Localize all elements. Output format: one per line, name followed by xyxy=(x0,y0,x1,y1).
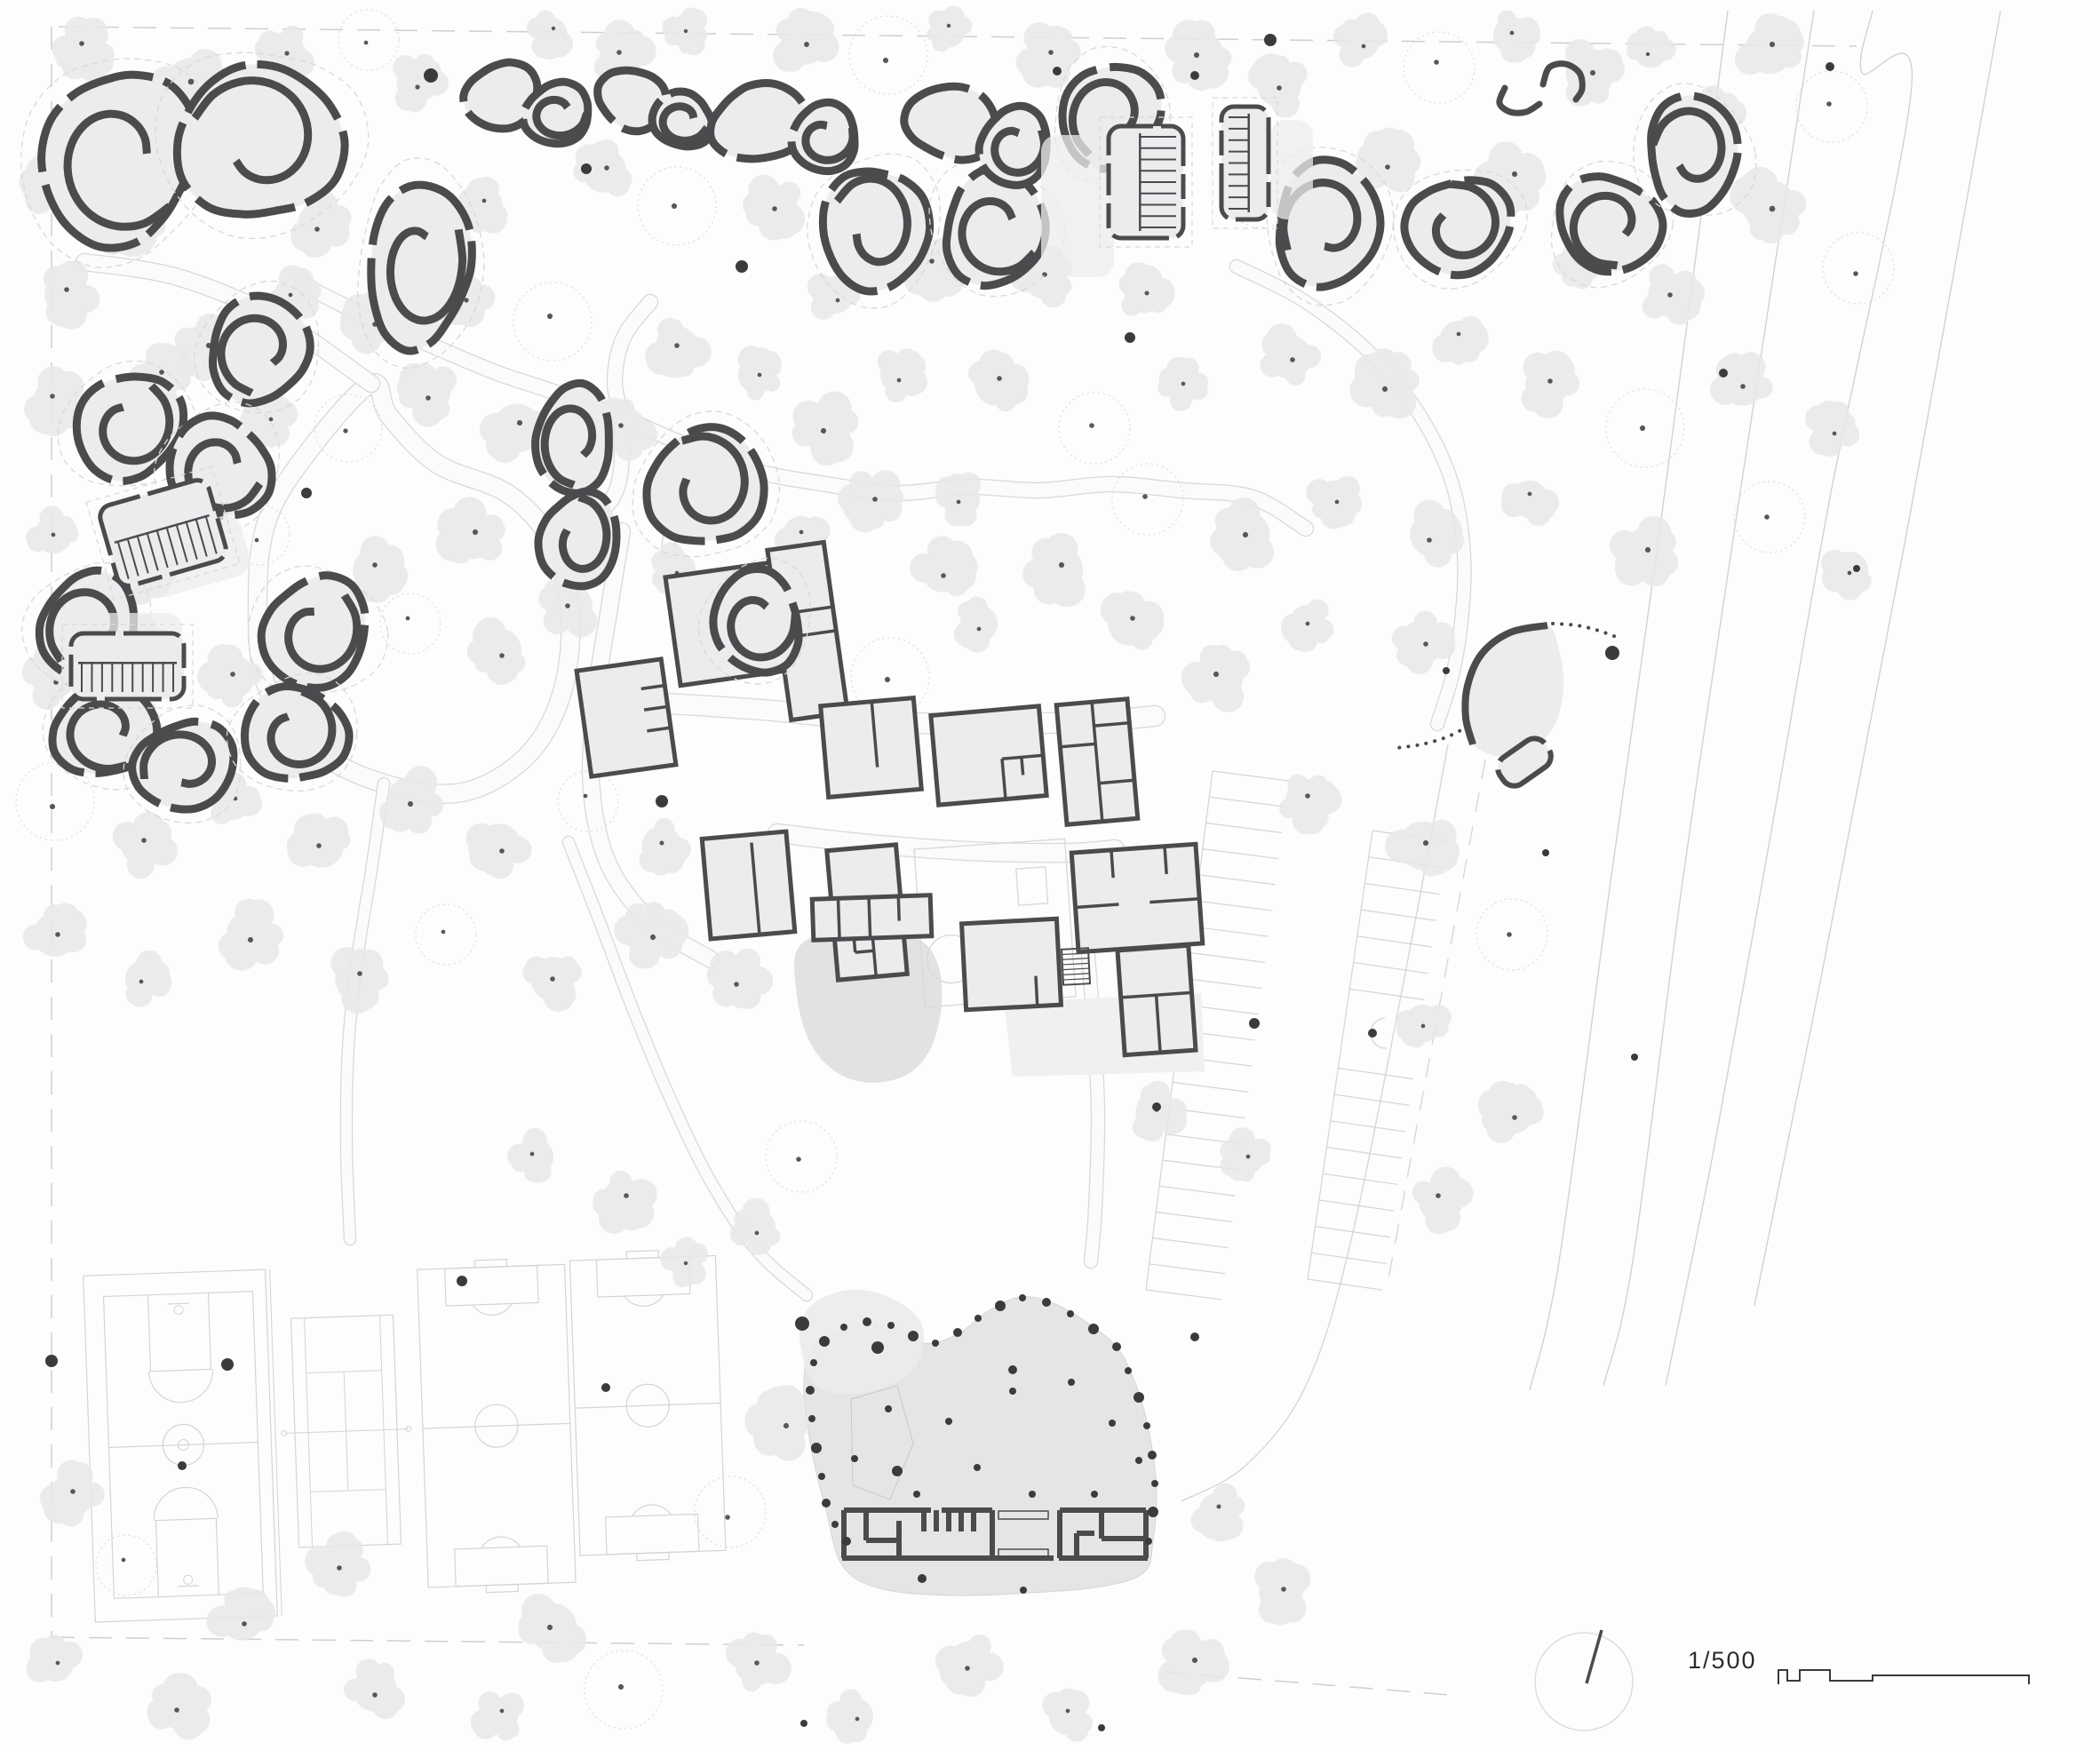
tree-canopy xyxy=(33,681,61,710)
tree-canopy xyxy=(1220,1141,1239,1160)
tree-canopy xyxy=(1342,20,1359,36)
tree-canopy xyxy=(1158,370,1175,387)
canopy-column-dot xyxy=(953,1328,962,1337)
tree-canopy xyxy=(1306,479,1332,505)
courts-layer xyxy=(84,1248,728,1622)
north-arrow-needle xyxy=(1587,1630,1602,1683)
tree-canopy xyxy=(686,1243,707,1264)
campus-building xyxy=(1118,945,1196,1054)
tree-canopy xyxy=(531,1162,552,1182)
tree-canopy xyxy=(1396,1010,1417,1030)
tree xyxy=(1796,71,1867,142)
tree-trunk-dot xyxy=(242,1621,247,1627)
tree-canopy xyxy=(947,10,964,27)
tree-canopy xyxy=(968,1635,991,1658)
pavilion-apron xyxy=(1041,135,1114,277)
parking-stall-line xyxy=(1146,1290,1221,1300)
tree-canopy xyxy=(482,1693,499,1710)
tree-canopy xyxy=(662,18,681,37)
canopy-column-dot xyxy=(1135,1457,1142,1464)
tree xyxy=(935,473,981,527)
tree-canopy xyxy=(957,624,980,648)
tree-trunk-dot xyxy=(221,1358,234,1371)
building-walls xyxy=(702,831,794,939)
tree-canopy xyxy=(380,801,408,829)
tree-canopy xyxy=(1595,48,1617,69)
tree-trunk-dot xyxy=(1605,646,1619,660)
tree-trunk-dot xyxy=(1281,1587,1286,1592)
tree-canopy xyxy=(1427,820,1457,850)
canopy-column-dot xyxy=(918,1574,927,1583)
building-partition-wall xyxy=(838,898,839,939)
soccer-penalty-area xyxy=(455,1546,548,1587)
tree xyxy=(878,348,927,402)
tree xyxy=(1333,12,1388,67)
tree-trunk-dot xyxy=(441,930,446,935)
canopy-column-dot xyxy=(1134,1392,1144,1403)
parking-stall-line xyxy=(1331,1121,1405,1132)
canopy-column-dot xyxy=(887,1322,895,1329)
tree-trunk-dot xyxy=(1059,562,1064,568)
tree-canopy xyxy=(606,172,630,196)
tree-canopy xyxy=(58,1500,84,1526)
tree-canopy xyxy=(1250,1139,1271,1160)
tree xyxy=(792,391,859,465)
parking-stall-line xyxy=(1361,910,1436,920)
tree-trunk-dot xyxy=(1246,1155,1251,1159)
tree-canopy xyxy=(1540,351,1572,383)
tree-canopy xyxy=(406,808,432,834)
tree-canopy xyxy=(1488,1081,1516,1110)
tree-canopy xyxy=(1209,47,1231,69)
parking-stall-line xyxy=(1334,1094,1409,1105)
tree-canopy xyxy=(1044,1698,1062,1717)
tree-trunk-dot xyxy=(1249,1018,1260,1029)
canopy-column-dot xyxy=(831,1521,839,1528)
tree-canopy xyxy=(754,1635,776,1657)
tree xyxy=(1119,262,1175,315)
blob-building xyxy=(538,491,616,586)
tree-trunk-dot xyxy=(1528,492,1532,497)
soccer-penalty-arc xyxy=(473,1304,512,1316)
tree-canopy xyxy=(1507,40,1529,62)
tree-trunk-dot xyxy=(1645,547,1651,553)
tree-trunk-dot xyxy=(1130,616,1135,621)
tree-trunk-dot xyxy=(316,843,322,848)
tree-trunk-dot xyxy=(122,1558,126,1563)
parking-stall-line xyxy=(1338,1068,1412,1078)
tree-trunk-dot xyxy=(1510,31,1515,36)
tree-canopy xyxy=(1710,376,1738,404)
tree-trunk-dot xyxy=(50,394,55,399)
tree-trunk-dot xyxy=(337,1565,342,1571)
tree-canopy xyxy=(1213,1484,1237,1507)
tree-canopy xyxy=(30,1659,48,1677)
tree-trunk-dot xyxy=(139,980,144,984)
tree-trunk-dot xyxy=(1826,62,1834,71)
tree-canopy xyxy=(489,205,507,224)
tree-canopy-outline xyxy=(96,1535,156,1595)
tree-trunk-dot xyxy=(50,804,55,809)
tree-canopy xyxy=(142,955,162,974)
tree-canopy xyxy=(149,823,169,843)
blob-building xyxy=(791,102,855,171)
canopy-column-dot xyxy=(811,1443,822,1453)
tree-canopy xyxy=(499,1692,524,1717)
parking-stall-line xyxy=(1149,1264,1225,1274)
tree xyxy=(287,813,351,867)
tree-canopy xyxy=(1185,670,1212,696)
basketball-backboard xyxy=(168,1303,189,1304)
tree-canopy xyxy=(40,410,60,431)
tree-canopy xyxy=(1526,501,1551,526)
tree-canopy xyxy=(946,473,966,493)
tree-canopy xyxy=(1649,264,1674,290)
tree-canopy xyxy=(92,43,115,65)
tree-canopy xyxy=(360,536,389,565)
tree-canopy xyxy=(1562,265,1583,286)
pavilion-apron xyxy=(1270,120,1313,219)
tree-trunk-dot xyxy=(1190,1332,1199,1341)
tree-canopy xyxy=(877,497,903,522)
tree-canopy xyxy=(776,20,798,42)
building-partition-wall xyxy=(1036,976,1038,1006)
tree xyxy=(1606,389,1684,467)
tree xyxy=(1805,401,1859,457)
tree-canopy xyxy=(1450,347,1468,365)
canopy-column-dot xyxy=(1088,1324,1099,1334)
canopy-column-dot xyxy=(1020,1587,1027,1594)
tree-trunk-dot xyxy=(1243,532,1248,537)
tree-canopy xyxy=(1253,56,1281,84)
building-partition-wall xyxy=(1022,757,1023,775)
soccer-goal xyxy=(486,1584,518,1592)
legend-layer xyxy=(1535,1630,2029,1730)
tree-trunk-dot xyxy=(141,838,147,843)
tree xyxy=(1404,32,1475,103)
tree xyxy=(397,363,457,427)
tree xyxy=(1521,351,1579,419)
canopy-column-dot xyxy=(810,1359,817,1366)
tree-canopy-outline xyxy=(1404,32,1475,103)
tree-trunk-dot xyxy=(55,932,60,937)
graphic-scale-bar xyxy=(1778,1670,2029,1684)
tree-trunk-dot xyxy=(1216,1504,1221,1508)
soccer-penalty-arc xyxy=(632,1504,671,1516)
campus-building xyxy=(812,895,932,941)
tree-canopy xyxy=(148,1702,175,1729)
tree-canopy xyxy=(1837,574,1864,601)
tree xyxy=(1493,10,1540,62)
tree-canopy xyxy=(235,1587,259,1612)
blob-wall xyxy=(371,185,473,351)
tree-trunk-dot xyxy=(64,287,69,292)
tree-canopy xyxy=(23,925,49,951)
amphitheater-lawn xyxy=(1465,624,1563,757)
tree-canopy xyxy=(179,1705,210,1735)
soccer-penalty-area xyxy=(445,1265,538,1306)
basketball-hoop xyxy=(184,1575,193,1584)
tree-canopy xyxy=(746,383,764,401)
tree-trunk-dot xyxy=(1089,423,1094,428)
tree xyxy=(219,899,283,971)
tree-canopy xyxy=(686,1264,706,1285)
tree-canopy xyxy=(626,1179,656,1209)
tree-canopy xyxy=(1279,798,1300,818)
tree-trunk-dot xyxy=(736,260,748,273)
tree-trunk-dot xyxy=(758,373,762,378)
parking-stall-line xyxy=(1357,936,1432,947)
tree-trunk-dot xyxy=(1306,622,1310,626)
tree-trunk-dot xyxy=(1853,271,1858,276)
basketball-key-arc xyxy=(153,1486,218,1520)
campus-building xyxy=(962,919,1062,1009)
tree-canopy xyxy=(1742,167,1778,203)
tree-trunk-dot xyxy=(616,50,622,55)
tree-canopy xyxy=(500,1720,519,1738)
tree-canopy xyxy=(1287,774,1308,794)
tree xyxy=(1643,264,1705,325)
tree-canopy xyxy=(596,33,616,53)
pavilion-wall xyxy=(71,633,184,699)
tree-trunk-dot xyxy=(1190,71,1199,80)
tree-canopy xyxy=(1149,278,1174,304)
tree-trunk-dot xyxy=(650,935,656,940)
tree xyxy=(393,54,449,112)
tree-canopy xyxy=(201,664,227,689)
tree-canopy xyxy=(1283,615,1300,632)
tree-canopy xyxy=(1515,153,1539,177)
tree-trunk-dot xyxy=(1770,42,1775,47)
site-plan: 1/500 xyxy=(0,0,2100,1750)
tree-canopy xyxy=(1298,345,1321,368)
canopy-column-dot xyxy=(1125,1367,1132,1374)
island-tree-dot xyxy=(1368,1029,1377,1038)
tree-canopy xyxy=(1267,1598,1294,1626)
tree-canopy xyxy=(1040,282,1066,307)
tree-trunk-dot xyxy=(618,1684,624,1690)
tree xyxy=(707,949,774,1009)
basketball-key xyxy=(148,1293,211,1371)
tree-canopy xyxy=(990,353,1014,378)
tree xyxy=(1735,13,1804,75)
tree-trunk-dot xyxy=(499,653,505,658)
tree-canopy xyxy=(684,9,707,32)
tree-trunk-dot xyxy=(1385,164,1390,170)
canopy-column-dot xyxy=(1068,1379,1075,1386)
tree-trunk-dot xyxy=(1264,34,1277,46)
campus-building xyxy=(577,659,676,776)
tree xyxy=(1181,645,1251,712)
tree-canopy-outline xyxy=(849,16,927,94)
tree-trunk-dot xyxy=(659,840,664,845)
tree xyxy=(1112,464,1183,535)
tree-trunk-dot xyxy=(547,1625,553,1630)
tree xyxy=(1260,323,1321,386)
parking-stall-line xyxy=(1323,1173,1397,1184)
tree-trunk-dot xyxy=(314,227,320,232)
tree xyxy=(507,1128,553,1183)
tree-canopy xyxy=(651,550,674,573)
tree-canopy xyxy=(647,346,676,375)
tree-canopy xyxy=(531,35,554,58)
tree xyxy=(1730,167,1806,243)
tree-canopy xyxy=(1246,541,1269,563)
parking-stall-line xyxy=(1173,1082,1248,1092)
tree-canopy-outline xyxy=(416,904,476,965)
tree-trunk-dot xyxy=(301,488,312,498)
campus-building xyxy=(702,831,794,939)
tree xyxy=(1022,533,1086,608)
tree-canopy xyxy=(742,1672,761,1691)
tree-trunk-dot xyxy=(530,1152,535,1157)
tree-canopy xyxy=(1735,44,1766,75)
basketball-key xyxy=(155,1518,219,1596)
tree-trunk-dot xyxy=(188,79,195,85)
tree-trunk-dot xyxy=(269,418,274,422)
tree-canopy xyxy=(553,35,570,52)
tree-trunk-dot xyxy=(372,1692,378,1698)
tree-canopy xyxy=(626,419,657,450)
building-partition-wall xyxy=(869,897,871,938)
tree xyxy=(1133,1081,1187,1141)
tree-canopy xyxy=(1212,680,1244,712)
tree-trunk-dot xyxy=(1434,60,1439,65)
tree-canopy xyxy=(358,1659,381,1682)
tree-canopy-outline xyxy=(1734,481,1805,553)
canopy-column-dot xyxy=(842,1537,851,1546)
building-partition-wall xyxy=(855,951,874,952)
canopy-column-dot xyxy=(1067,1310,1074,1317)
tree-canopy xyxy=(654,818,674,839)
tree xyxy=(467,617,525,685)
tree-trunk-dot xyxy=(885,677,890,682)
tree-canopy xyxy=(1654,39,1675,60)
tree xyxy=(1610,516,1678,586)
tree-canopy xyxy=(1313,619,1334,640)
tree xyxy=(1254,1558,1310,1625)
tree-trunk-dot xyxy=(482,199,487,203)
tree-canopy xyxy=(1444,1179,1474,1208)
tree-canopy xyxy=(558,957,578,977)
tree xyxy=(662,7,707,55)
tree-canopy xyxy=(235,899,264,928)
tree-canopy xyxy=(378,1686,405,1713)
canopy-column-dot xyxy=(1109,1420,1116,1427)
tree-canopy xyxy=(743,193,768,218)
canopy-column-dot xyxy=(808,1415,815,1422)
tree-trunk-dot xyxy=(1421,1024,1426,1029)
canopy-column-dot xyxy=(1148,1507,1158,1517)
tree-canopy xyxy=(282,26,304,48)
canopy-column-dot xyxy=(819,1336,830,1347)
tree-trunk-dot xyxy=(357,971,362,976)
parking-stall-line xyxy=(1326,1147,1401,1157)
tree xyxy=(1016,22,1081,88)
tree-canopy xyxy=(928,10,949,30)
tree-trunk-dot xyxy=(1547,378,1553,384)
tree-trunk-dot xyxy=(1125,332,1135,343)
comb-pavilion xyxy=(1041,117,1192,277)
tree-canopy xyxy=(1752,377,1773,398)
tree-canopy xyxy=(805,516,827,538)
tree xyxy=(1710,352,1773,405)
canopy-column-dot xyxy=(1112,1342,1121,1351)
tree-canopy xyxy=(1519,1095,1542,1118)
tree-canopy-outline xyxy=(1112,464,1183,535)
tree xyxy=(585,1651,663,1729)
canopy-column-dot xyxy=(995,1301,1006,1311)
tree-trunk-dot xyxy=(426,395,431,401)
canopy-column-dot xyxy=(1042,1298,1051,1307)
tree xyxy=(330,947,388,1014)
tree-canopy xyxy=(1516,19,1540,43)
tree-canopy xyxy=(826,432,853,458)
tree-trunk-dot xyxy=(1640,426,1645,431)
tree-canopy xyxy=(1349,373,1384,408)
parking-stall-line xyxy=(1354,963,1428,974)
tree-canopy xyxy=(1441,1208,1460,1228)
building-walls xyxy=(821,698,922,798)
sports-courts xyxy=(84,1248,728,1622)
court-enclosure xyxy=(84,1269,277,1622)
canopy-column-dot xyxy=(1091,1491,1098,1498)
soccer-halfway-line xyxy=(575,1403,720,1408)
campus-building xyxy=(931,706,1046,805)
tree-canopy xyxy=(1369,348,1397,377)
building-partition-wall xyxy=(898,896,899,921)
tree-canopy xyxy=(1339,42,1364,67)
tree xyxy=(614,902,688,968)
canopy-column-dot xyxy=(851,1455,858,1462)
tree-canopy xyxy=(809,280,829,299)
tree-canopy xyxy=(236,791,262,816)
tree-canopy xyxy=(1188,20,1215,47)
tree-canopy xyxy=(806,15,834,44)
parking-stall-line xyxy=(1153,1238,1229,1248)
tree-trunk-dot xyxy=(821,428,826,434)
tree-canopy xyxy=(1442,521,1461,541)
comb-pavilion xyxy=(1213,98,1313,228)
basketball-key-arc xyxy=(149,1369,214,1403)
tree-trunk-dot xyxy=(1192,1658,1197,1663)
tree xyxy=(660,1237,708,1287)
tree-canopy xyxy=(481,518,505,541)
tree-canopy xyxy=(1125,262,1153,290)
canopy-column-dot xyxy=(1009,1388,1016,1395)
tree-canopy xyxy=(399,387,419,408)
tree-canopy xyxy=(1170,389,1192,411)
tree xyxy=(1565,39,1625,107)
canopy-column-dot xyxy=(932,1340,939,1347)
tree-trunk-dot xyxy=(415,84,419,89)
tree-canopy-outline xyxy=(766,1121,837,1192)
tree-canopy xyxy=(352,324,381,354)
soccer-goal xyxy=(626,1251,658,1259)
tree-canopy xyxy=(1285,366,1305,386)
canopy-column-dot xyxy=(806,1386,815,1395)
tree-trunk-dot xyxy=(604,165,609,171)
tree xyxy=(113,812,178,879)
tree xyxy=(1101,591,1165,649)
canopy-column-dot xyxy=(1151,1480,1158,1487)
tree-canopy xyxy=(473,177,499,203)
tree-trunk-dot xyxy=(796,1157,801,1162)
tree xyxy=(1279,774,1342,834)
tree-trunk-dot xyxy=(1740,384,1746,389)
tree-trunk-dot xyxy=(1826,101,1832,107)
tree xyxy=(738,346,782,400)
